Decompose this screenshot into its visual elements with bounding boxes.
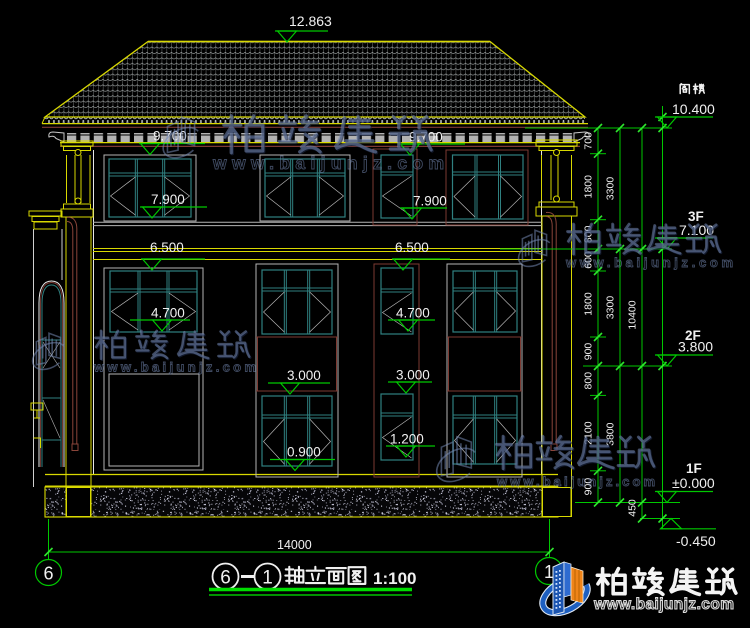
- svg-text:1800: 1800: [583, 175, 595, 199]
- svg-text:3.000: 3.000: [287, 368, 321, 383]
- svg-text:-0.450: -0.450: [676, 533, 716, 549]
- svg-text:4.700: 4.700: [151, 306, 185, 321]
- svg-text:450: 450: [627, 499, 639, 517]
- svg-text:1F: 1F: [686, 461, 702, 476]
- svg-text:800: 800: [583, 372, 595, 390]
- svg-text:6: 6: [43, 564, 53, 584]
- svg-text:1: 1: [262, 568, 273, 589]
- svg-text:1:100: 1:100: [373, 569, 416, 588]
- svg-text:www.baijunjz.com: www.baijunjz.com: [93, 360, 256, 375]
- svg-text:6: 6: [220, 568, 231, 589]
- svg-text:www.baijunjz.com: www.baijunjz.com: [496, 474, 655, 489]
- svg-text:4.700: 4.700: [396, 306, 430, 321]
- svg-text:7.900: 7.900: [151, 192, 185, 207]
- svg-text:1800: 1800: [583, 292, 595, 316]
- svg-text:3.000: 3.000: [396, 368, 430, 383]
- svg-text:14000: 14000: [277, 538, 312, 552]
- svg-text:1.200: 1.200: [390, 432, 424, 447]
- svg-text:700: 700: [583, 132, 595, 150]
- svg-text:7.900: 7.900: [413, 194, 447, 209]
- svg-text:3.800: 3.800: [678, 339, 713, 355]
- svg-text:3300: 3300: [605, 296, 617, 320]
- svg-text:10.400: 10.400: [672, 101, 715, 117]
- svg-text:3300: 3300: [605, 177, 617, 201]
- svg-text:6.500: 6.500: [150, 240, 184, 255]
- svg-text:±0.000: ±0.000: [672, 475, 715, 491]
- svg-text:10400: 10400: [627, 300, 639, 329]
- svg-text:www.baijunjz.com: www.baijunjz.com: [212, 153, 444, 173]
- svg-text:www.baijunjz.com: www.baijunjz.com: [593, 596, 735, 613]
- svg-text:900: 900: [583, 343, 595, 361]
- svg-text:6.500: 6.500: [395, 240, 429, 255]
- svg-text:12.863: 12.863: [289, 13, 332, 29]
- svg-text:0.900: 0.900: [287, 445, 321, 460]
